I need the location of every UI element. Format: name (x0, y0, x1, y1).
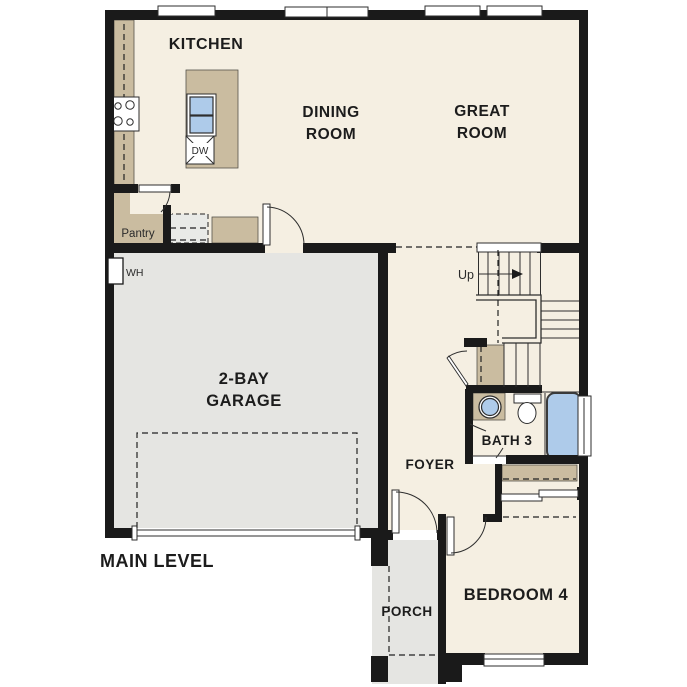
pantry-door-leaf (139, 185, 171, 192)
floor-plan: KITCHEN DINING ROOM GREAT ROOM 2-BAY GAR… (0, 0, 687, 687)
garage-door-endcap (355, 526, 360, 540)
bath-door-opening (473, 456, 506, 464)
wall-pantry (105, 184, 138, 193)
level-title: MAIN LEVEL (100, 551, 214, 571)
garage-entry-door-leaf (263, 204, 270, 245)
room-label-dining-2: ROOM (306, 126, 356, 143)
kitchen-counter-2 (212, 217, 258, 243)
cooktop-icon (110, 97, 139, 131)
window-icon (487, 6, 542, 16)
room-label-foyer: FOYER (405, 457, 454, 472)
sliding-door-icon (501, 494, 542, 501)
window-icon (425, 6, 480, 16)
room-label-pantry: Pantry (121, 228, 154, 240)
wall-bath-bottom-corner (465, 455, 473, 464)
bedroom-closet (502, 465, 577, 481)
room-label-kitchen: KITCHEN (169, 36, 244, 53)
wall-right-lower (579, 452, 588, 663)
front-door-leaf (392, 490, 399, 533)
front-door-opening (393, 530, 437, 540)
room-label-dining-1: DINING (302, 104, 359, 121)
wall-bath-bottom (506, 455, 584, 464)
room-label-great-2: ROOM (457, 125, 507, 142)
porch-post-bottom (371, 656, 388, 682)
wall-garage-foyer (378, 243, 388, 540)
room-label-bath3: BATH 3 (482, 433, 533, 448)
room-label-porch: PORCH (381, 604, 432, 619)
wall-bath-left (465, 389, 473, 463)
bathtub-icon (547, 393, 581, 459)
wall-pantry-jamb (171, 184, 180, 193)
wall-garage-bottom-left (105, 528, 135, 538)
island-sink-icon (190, 116, 213, 133)
stairs-up-label: Up (458, 268, 474, 282)
island-sink-icon (190, 97, 213, 115)
room-label-garage-1: 2-BAY (219, 370, 270, 388)
window-icon (327, 7, 368, 17)
bedroom-door-leaf (447, 517, 454, 555)
wall-greatroom-bottom (537, 243, 588, 253)
wall-bedroom-bottom-right (543, 653, 588, 665)
room-label-garage-2: GARAGE (206, 392, 281, 410)
water-heater-label: WH (126, 267, 144, 279)
window-icon (285, 7, 327, 17)
window-icon (158, 6, 215, 16)
wall-pantry-partition (163, 205, 171, 245)
porch-post-top (371, 538, 388, 566)
garage-door-endcap (132, 526, 137, 540)
wall-garage-bottom-right (357, 528, 388, 538)
room-label-great-1: GREAT (454, 103, 510, 120)
water-heater (108, 258, 123, 284)
garage-entry-opening (265, 243, 303, 253)
wall-closet-stub (464, 338, 487, 347)
room-label-bedroom4: BEDROOM 4 (464, 586, 569, 604)
wall-right-upper (579, 10, 588, 398)
stair-top-rail (477, 243, 541, 252)
toilet-tank (514, 394, 541, 403)
toilet-icon (518, 403, 536, 424)
sliding-door-icon (539, 490, 578, 497)
bath-sink-icon (482, 399, 499, 416)
water-heater-icon (108, 258, 123, 284)
wall-bedroom-corner-block (438, 653, 462, 682)
floor-plan-page: KITCHEN DINING ROOM GREAT ROOM 2-BAY GAR… (0, 0, 687, 687)
wall-kitchen-garage-left (105, 243, 265, 253)
dishwasher-label: DW (192, 146, 209, 157)
window-icon (484, 654, 544, 666)
